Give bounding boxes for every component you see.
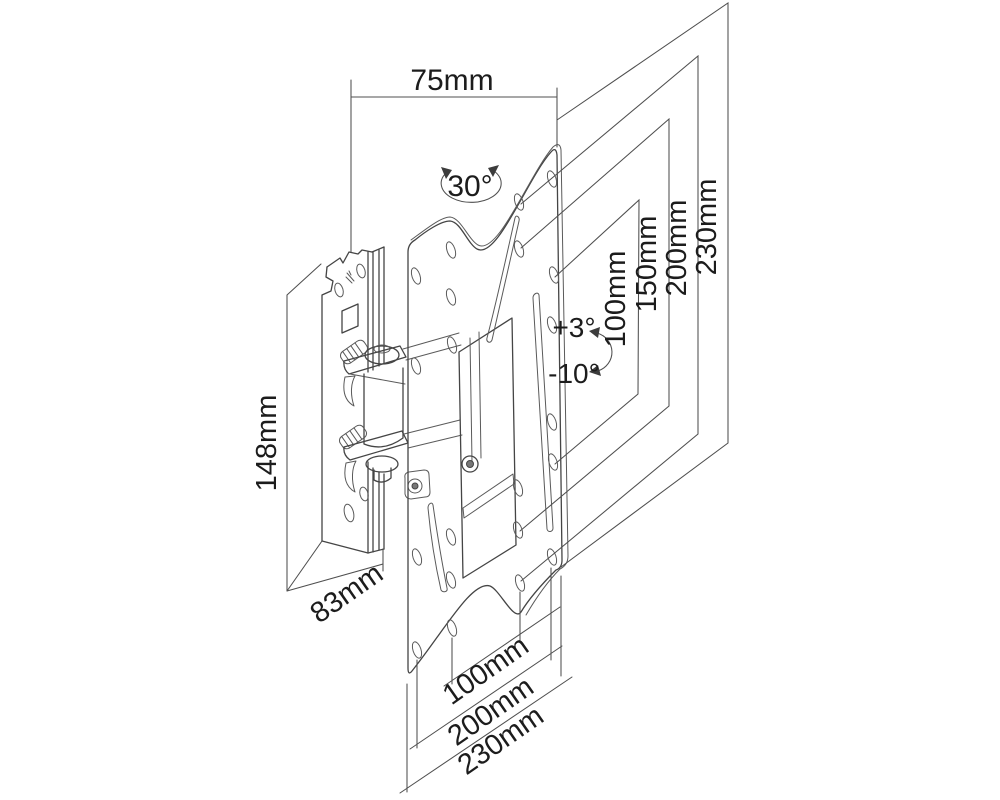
wall-plate-cutout bbox=[342, 304, 358, 333]
hinge-assembly bbox=[338, 333, 462, 499]
dim-label-30deg: 30° bbox=[447, 170, 492, 203]
bottom-dimensions: 100mm 200mm 230mm bbox=[400, 568, 572, 793]
vesa-window bbox=[459, 318, 516, 578]
dim-label-v-230mm: 230mm bbox=[691, 179, 723, 276]
wall-plate bbox=[322, 247, 384, 553]
hinge-knob-top bbox=[339, 338, 370, 366]
vesa-vertical-labels: 100mm 150mm 200mm 230mm bbox=[600, 179, 723, 348]
dim-label-148mm: 148mm bbox=[251, 395, 283, 492]
window-flange bbox=[463, 474, 514, 518]
dim-label-tilt-down: -10° bbox=[548, 358, 600, 389]
dim-label-tilt-up: +3° bbox=[552, 312, 595, 343]
hinge-washer bbox=[366, 456, 398, 472]
dimension-drawing: 75mm 30° 148mm 83mm +3° -10° 100mm 150mm… bbox=[0, 0, 1000, 800]
hinge-links bbox=[403, 333, 462, 448]
wall-mount-diagram: 75mm 30° 148mm 83mm +3° -10° 100mm 150mm… bbox=[0, 0, 1000, 800]
dim-label-v-150mm: 150mm bbox=[631, 216, 663, 313]
swivel-annotation: 30° bbox=[441, 165, 501, 203]
dimension-height-148: 148mm bbox=[251, 264, 322, 591]
dim-label-v-200mm: 200mm bbox=[661, 200, 693, 297]
dimension-depth-83: 83mm bbox=[287, 549, 389, 630]
dimension-width-75: 75mm bbox=[351, 64, 557, 252]
screw-mark bbox=[346, 271, 354, 283]
hinge-hook-bottom bbox=[345, 461, 356, 492]
arm-slot-lower-right bbox=[533, 293, 553, 531]
dim-label-83mm: 83mm bbox=[305, 557, 389, 629]
vesa-plate bbox=[408, 145, 568, 673]
dim-label-v-100mm: 100mm bbox=[600, 251, 632, 348]
dim-label-75mm: 75mm bbox=[410, 64, 493, 97]
arm-slot-lower-left bbox=[428, 503, 447, 592]
hinge-dome-top bbox=[365, 346, 399, 364]
hinge-hook-top bbox=[344, 376, 355, 406]
